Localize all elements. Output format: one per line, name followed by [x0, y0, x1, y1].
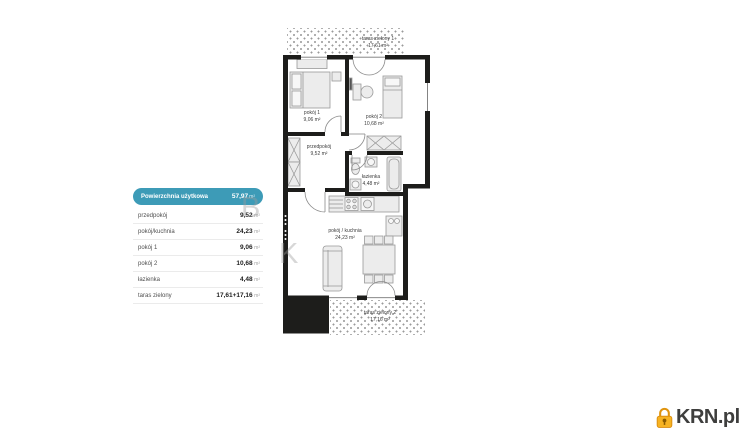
chair-icon — [365, 236, 374, 244]
row-value: 9,06m² — [240, 244, 260, 251]
table-row: łazienka 4,48m² — [133, 272, 263, 288]
wardrobe-icon — [297, 60, 327, 69]
usable-area-label: Powierzchnia użytkowa — [141, 194, 208, 200]
room-label-pokoj1: pokój 19,06 m² — [304, 110, 321, 124]
row-value: 10,68m² — [236, 260, 260, 267]
room-label-przedpokoj: przedpokój9,52 m² — [307, 144, 331, 158]
sofa-icon — [323, 246, 342, 291]
watermark-letter: K — [279, 238, 298, 271]
row-label: łazienka — [138, 277, 160, 283]
dining-table-icon — [363, 245, 395, 274]
row-label: pokój 2 — [138, 261, 157, 267]
row-label: pokój 1 — [138, 245, 157, 251]
table-row: pokój 1 9,06m² — [133, 240, 263, 256]
watermark-letter: B — [241, 192, 260, 225]
krn-logo: KRN.pl — [655, 406, 740, 429]
floor-plan-drawing — [283, 28, 435, 340]
tv-icon — [350, 78, 353, 90]
table-row: pokój/kuchnia 24,23m² — [133, 224, 263, 240]
row-value: 4,48m² — [240, 276, 260, 283]
krn-logo-text: KRN.pl — [676, 406, 740, 429]
chair-icon — [385, 236, 394, 244]
room-label-taras1: taras zielony 117,61 m² — [362, 36, 394, 50]
floorplan-listing-image: Powierzchnia użytkowa 57,97m² przedpokój… — [0, 0, 740, 443]
row-label: przedpokój — [138, 213, 167, 219]
table-row: pokój 2 10,68m² — [133, 256, 263, 272]
row-label: pokój/kuchnia — [138, 229, 175, 235]
chair-icon — [361, 86, 373, 98]
nightstand-icon — [332, 72, 341, 81]
desk-icon — [353, 84, 361, 100]
row-value: 24,23m² — [236, 228, 260, 235]
table-row: taras zielony 17,61+17,16m² — [133, 288, 263, 304]
chair-icon — [365, 275, 374, 283]
row-label: taras zielony — [138, 293, 172, 299]
room-label-lazienka: łazienka4,48 m² — [362, 174, 380, 188]
room-label-salon: pokój / kuchnia24,23 m² — [328, 228, 361, 242]
wardrobe-icon — [367, 136, 401, 150]
chair-icon — [385, 275, 394, 283]
room-label-pokoj2: pokój 210,68 m² — [364, 114, 384, 128]
row-value: 17,61+17,16m² — [216, 292, 260, 299]
room-label-taras2: taras zielony 217,16 m² — [364, 310, 396, 324]
chair-icon — [375, 236, 384, 244]
floor-plan: taras zielony 117,61 m² pokój 19,06 m² p… — [283, 28, 435, 340]
solid-block — [283, 296, 329, 334]
cabinet-icon — [386, 216, 402, 236]
padlock-icon — [655, 406, 674, 429]
